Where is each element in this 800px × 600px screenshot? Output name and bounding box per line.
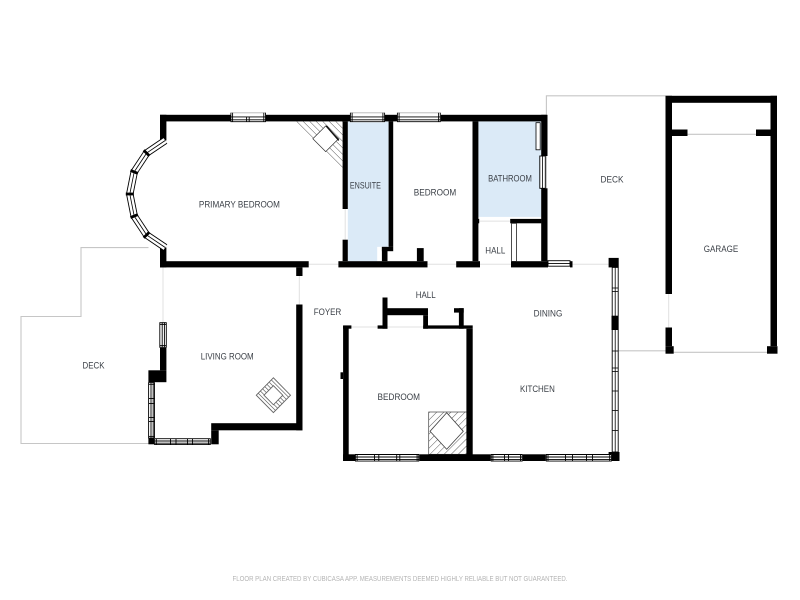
svg-text:GARAGE: GARAGE	[704, 244, 739, 254]
svg-text:FOYER: FOYER	[314, 307, 342, 317]
svg-text:DECK: DECK	[601, 175, 624, 185]
svg-text:ENSUITE: ENSUITE	[350, 180, 381, 190]
svg-text:BATHROOM: BATHROOM	[488, 174, 532, 184]
svg-text:BEDROOM: BEDROOM	[378, 392, 421, 402]
svg-text:PRIMARY BEDROOM: PRIMARY BEDROOM	[199, 200, 280, 210]
svg-text:HALL: HALL	[416, 290, 436, 300]
svg-text:KITCHEN: KITCHEN	[520, 384, 555, 394]
svg-text:FLOOR PLAN CREATED BY CUBICASA: FLOOR PLAN CREATED BY CUBICASA APP. MEAS…	[233, 576, 568, 583]
svg-text:DINING: DINING	[534, 309, 563, 319]
svg-text:LIVING ROOM: LIVING ROOM	[201, 352, 254, 362]
svg-text:DECK: DECK	[83, 361, 105, 371]
svg-text:BEDROOM: BEDROOM	[414, 188, 457, 198]
svg-text:HALL: HALL	[485, 245, 505, 255]
